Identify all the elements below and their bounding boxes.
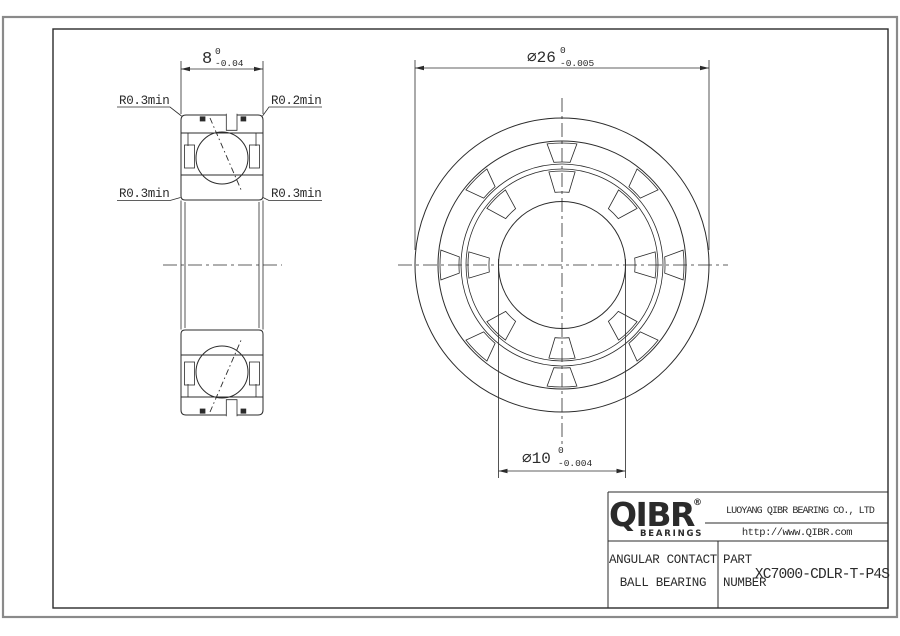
od-tol-lower: -0.005	[560, 58, 595, 69]
arrowhead-right	[254, 67, 263, 72]
inner-ring-section	[181, 175, 263, 200]
company-website: http://www.QIBR.com	[742, 527, 852, 539]
width-tol-upper: 0	[215, 46, 221, 57]
section-upper-half	[181, 113, 263, 200]
engineering-drawing-canvas: 8 0 -0.04 R0.3min R0.2min R0.3min R0.3mi…	[0, 0, 900, 636]
cage-pocket	[487, 190, 516, 219]
sheet-inner-border	[53, 29, 888, 608]
arrowhead-right	[617, 469, 626, 474]
fillet-label-mid-left: R0.3min	[119, 187, 169, 201]
outer-ring-section	[181, 115, 263, 133]
leader-top-left	[117, 107, 182, 116]
arrowhead-left	[499, 469, 508, 474]
arrowhead-left	[415, 66, 424, 71]
product-name-line1: ANGULAR CONTACT	[609, 553, 718, 567]
part-label-line1: PART	[723, 553, 753, 567]
ball-section	[196, 132, 248, 184]
bore-tol-lower: -0.004	[558, 458, 593, 469]
part-number: XC7000-CDLR-T-P4S	[755, 567, 889, 583]
logo-subtext: BEARINGS	[640, 529, 703, 539]
rivet-mark-right	[241, 116, 247, 121]
cage-pocket	[608, 190, 637, 219]
rivet-mark-left	[200, 116, 206, 121]
width-dimension: 8 0 -0.04	[181, 46, 263, 114]
bore-nominal: ∅10	[522, 450, 551, 468]
cage-pocket	[608, 311, 637, 340]
od-dimension: ∅26 0 -0.005	[415, 45, 709, 250]
width-nominal: 8	[202, 50, 212, 69]
fillet-label-top-left: R0.3min	[119, 94, 169, 108]
product-name-line2: BALL BEARING	[620, 576, 706, 590]
bearing-section-view: 8 0 -0.04 R0.3min R0.2min R0.3min R0.3mi…	[117, 46, 322, 417]
od-tol-upper: 0	[560, 45, 566, 56]
arrowhead-left	[181, 67, 190, 72]
title-block: QIBR ® BEARINGS LUOYANG QIBR BEARING CO.…	[608, 492, 889, 608]
width-tol-lower: -0.04	[215, 58, 244, 69]
registered-trademark-icon: ®	[693, 498, 702, 508]
fillet-labels: R0.3min R0.2min R0.3min R0.3min	[117, 94, 322, 201]
fillet-label-mid-right: R0.3min	[271, 187, 321, 201]
od-nominal: ∅26	[527, 49, 556, 67]
cage-section-left	[185, 145, 195, 168]
leader-top-right	[263, 107, 323, 116]
company-name: LUOYANG QIBR BEARING CO., LTD	[726, 506, 875, 517]
bore-tol-upper: 0	[558, 445, 564, 456]
bearing-front-view: ∅26 0 -0.005 ∅10 0 -0.004	[398, 45, 728, 478]
cage-section-right	[250, 145, 260, 168]
drawing-sheet: 8 0 -0.04 R0.3min R0.2min R0.3min R0.3mi…	[0, 0, 900, 636]
cage-slot	[226, 113, 237, 130]
cage-pocket	[487, 311, 516, 340]
arrowhead-right	[700, 66, 709, 71]
section-lower-half	[181, 330, 263, 417]
fillet-label-top-right: R0.2min	[271, 94, 321, 108]
